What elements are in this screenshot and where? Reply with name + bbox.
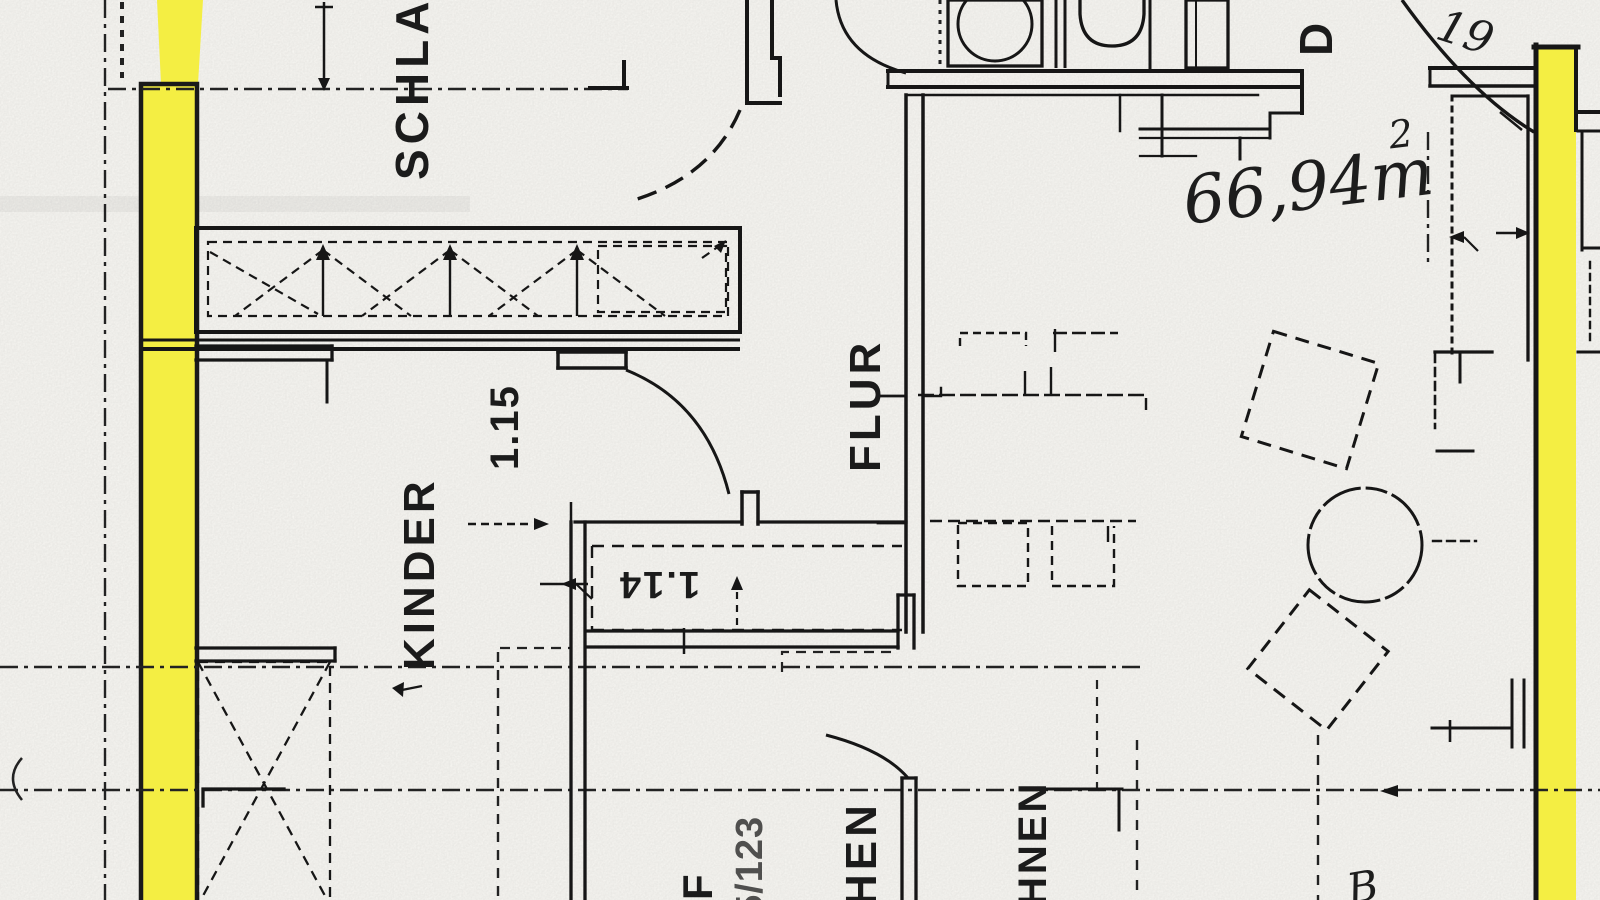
left-highlight-stroke-top [157, 0, 203, 84]
reference-number-fragment: 5/123 [729, 816, 771, 900]
area-exponent-text: 2 [1385, 111, 1415, 158]
dimension-114: 1.14 [618, 563, 700, 605]
reference-f-fragment: F [674, 874, 721, 900]
room-label-kochen-fragment: HEN [837, 801, 886, 900]
room-label-kinder: KINDER [395, 477, 444, 670]
scanned-floor-plan-page: SCHLAF FLUR KINDER HEN HNEN D 1.15 1.14 … [0, 0, 1600, 900]
room-label-schlafen: SCHLAF [386, 0, 438, 180]
scan-artifact-band [0, 196, 470, 212]
dimension-115: 1.15 [483, 384, 527, 470]
room-label-wohnen-fragment: HNEN [1011, 781, 1055, 900]
right-highlighted-wall [1538, 45, 1576, 900]
scan-grain [0, 0, 1600, 900]
left-highlighted-wall [141, 84, 197, 900]
room-label-bad-fragment: D [1290, 23, 1342, 56]
room-label-flur: FLUR [841, 339, 890, 472]
floor-plan-scan: SCHLAF FLUR KINDER HEN HNEN D 1.15 1.14 … [0, 0, 1600, 900]
